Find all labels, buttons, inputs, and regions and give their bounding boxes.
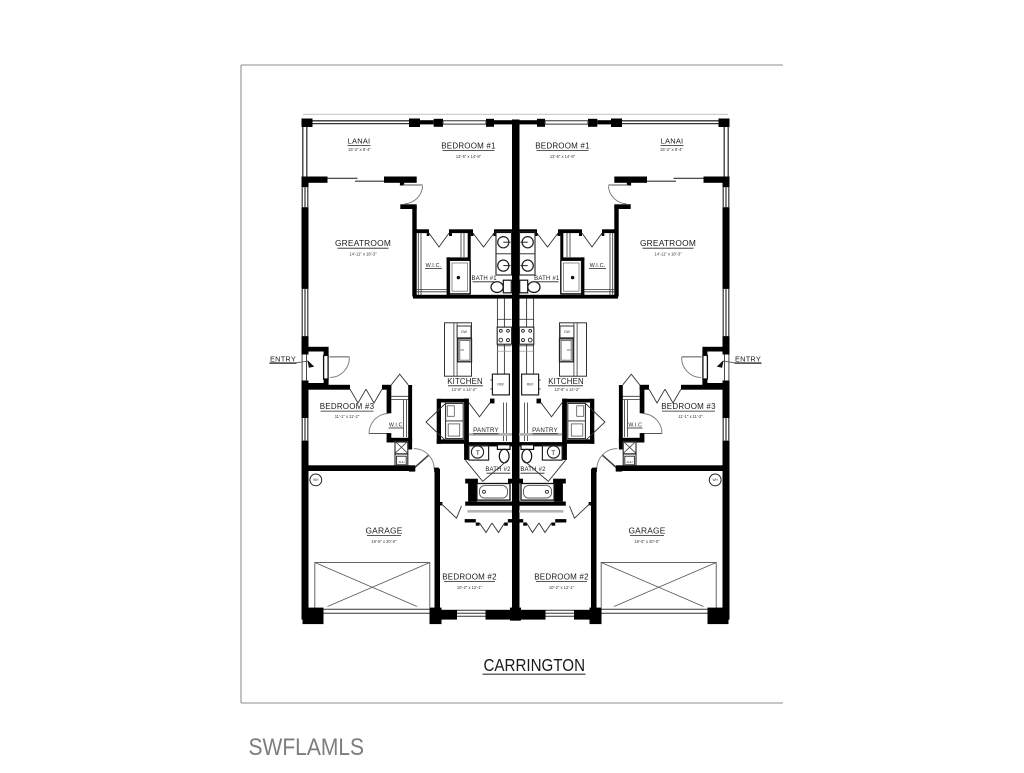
svg-text:15'-2" x 8'-4": 15'-2" x 8'-4" <box>348 147 371 152</box>
svg-text:BEDROOM #1: BEDROOM #1 <box>535 142 590 151</box>
svg-text:GARAGE: GARAGE <box>365 525 402 535</box>
svg-text:CARRINGTON: CARRINGTON <box>484 655 586 675</box>
svg-text:AHU: AHU <box>626 460 632 464</box>
svg-text:BATH #2: BATH #2 <box>520 467 546 473</box>
svg-text:BEDROOM #3: BEDROOM #3 <box>661 402 716 411</box>
svg-text:PANTRY: PANTRY <box>532 427 558 434</box>
svg-text:W.I.C: W.I.C <box>628 422 642 428</box>
svg-text:KITCHEN: KITCHEN <box>548 377 584 386</box>
svg-text:11'-1" x 11'-2": 11'-1" x 11'-2" <box>678 414 703 419</box>
svg-text:W.I.C.: W.I.C. <box>590 263 606 269</box>
svg-text:REF: REF <box>527 382 534 386</box>
svg-text:W.I.C: W.I.C <box>389 422 403 428</box>
svg-text:LANAI: LANAI <box>661 137 684 146</box>
svg-text:BEDROOM #3: BEDROOM #3 <box>320 402 375 411</box>
svg-text:WH: WH <box>313 478 319 482</box>
svg-text:19'-5" x 20'-0": 19'-5" x 20'-0" <box>371 539 397 544</box>
svg-text:ENTRY: ENTRY <box>735 354 761 363</box>
svg-text:W.I.C.: W.I.C. <box>426 263 442 269</box>
svg-text:BATH #1: BATH #1 <box>534 276 560 282</box>
svg-text:BEDROOM #2: BEDROOM #2 <box>534 572 589 581</box>
svg-text:10'-2" x 12'-1": 10'-2" x 12'-1" <box>549 585 575 590</box>
svg-text:REF: REF <box>497 382 504 386</box>
svg-text:WH: WH <box>713 478 719 482</box>
svg-text:13'-5" x 14'-8": 13'-5" x 14'-8" <box>550 154 576 159</box>
svg-text:BEDROOM #1: BEDROOM #1 <box>441 142 496 151</box>
svg-text:GREATROOM: GREATROOM <box>335 238 391 248</box>
svg-text:10'-2" x 12'-1": 10'-2" x 12'-1" <box>457 585 483 590</box>
svg-text:13'-5" x 14'-8": 13'-5" x 14'-8" <box>456 154 482 159</box>
svg-text:KITCHEN: KITCHEN <box>447 377 483 386</box>
svg-text:13'-6" x 14'-2": 13'-6" x 14'-2" <box>554 387 580 392</box>
svg-text:BEDROOM #2: BEDROOM #2 <box>442 572 497 581</box>
svg-text:DW: DW <box>461 330 467 334</box>
svg-text:T: T <box>476 450 480 457</box>
svg-text:11'-1" x 11'-2": 11'-1" x 11'-2" <box>335 414 360 419</box>
svg-text:LANAI: LANAI <box>348 137 371 146</box>
svg-text:13'-6" x 14'-2": 13'-6" x 14'-2" <box>451 387 477 392</box>
svg-text:T: T <box>551 450 555 457</box>
svg-text:14'-11" x 18'-3": 14'-11" x 18'-3" <box>349 251 377 256</box>
svg-text:AHU: AHU <box>398 460 404 464</box>
svg-text:BATH #1: BATH #1 <box>472 276 498 282</box>
svg-text:SWFLAMLS: SWFLAMLS <box>249 734 365 761</box>
svg-text:19'-5" x 20'-0": 19'-5" x 20'-0" <box>634 539 660 544</box>
svg-text:14'-11" x 18'-3": 14'-11" x 18'-3" <box>654 251 682 256</box>
svg-text:PANTRY: PANTRY <box>473 427 499 434</box>
svg-text:ENTRY: ENTRY <box>270 354 296 363</box>
svg-text:GARAGE: GARAGE <box>628 525 665 535</box>
svg-text:BATH #2: BATH #2 <box>485 467 511 473</box>
svg-text:GREATROOM: GREATROOM <box>640 238 696 248</box>
svg-text:15'-2" x 8'-4": 15'-2" x 8'-4" <box>660 147 683 152</box>
svg-text:DW: DW <box>564 330 570 334</box>
